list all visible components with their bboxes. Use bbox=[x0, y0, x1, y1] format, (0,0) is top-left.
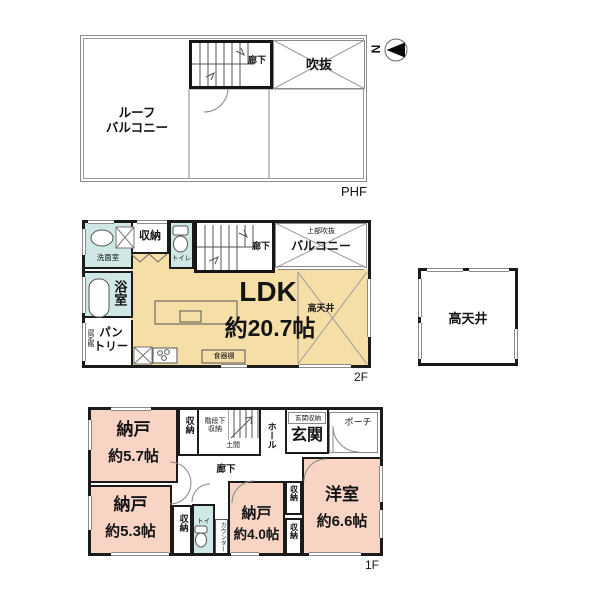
window-mark bbox=[88, 496, 92, 530]
2f-closet: 収納 bbox=[131, 223, 169, 254]
window-mark bbox=[82, 277, 86, 313]
window-mark bbox=[418, 323, 422, 359]
1f-closet-top-label: 収納 bbox=[184, 416, 195, 434]
1f-closet-right-top-label: 収納 bbox=[289, 485, 298, 501]
1f-toilet: トイレ bbox=[192, 504, 215, 553]
floor-plan-page: { "colors": { "room_pink": "#f8d4c4", "r… bbox=[0, 0, 600, 600]
1f-closet-right-bottom-label: 収納 bbox=[289, 523, 298, 539]
window-mark bbox=[379, 466, 383, 502]
annex-high-ceiling-label: 高天井 bbox=[421, 311, 515, 326]
1f-western-name: 洋室 bbox=[304, 485, 380, 505]
phf-corridor-label: 廊下 bbox=[243, 55, 271, 66]
2f-corridor-label: 廊下 bbox=[248, 241, 274, 252]
1f-closet-right-top: 収納 bbox=[285, 481, 302, 515]
window-mark bbox=[137, 220, 167, 224]
window-mark bbox=[469, 268, 509, 272]
1f-hall-label: ホール bbox=[266, 422, 277, 449]
2f-cupboard-label: 食器棚 bbox=[204, 353, 244, 361]
2f-ldk-size-label: 約20.7帖 bbox=[200, 315, 340, 342]
window-mark bbox=[309, 552, 361, 556]
1f-storage-5_7-name: 納戸 bbox=[91, 420, 176, 440]
window-mark bbox=[427, 268, 463, 272]
phf-floor-label: PHF bbox=[337, 184, 371, 199]
2f-floor-label: 2F bbox=[350, 370, 372, 384]
2f-ldk-room-notch bbox=[131, 252, 169, 272]
2f-toilet: トイレ bbox=[169, 223, 194, 269]
floor-phf: 廊下 吹抜 ルーフ バルコニー bbox=[80, 35, 367, 182]
window-mark bbox=[379, 510, 383, 538]
window-mark bbox=[367, 279, 371, 337]
1f-understair-area: 階段下 収納 土間 bbox=[199, 410, 261, 456]
1f-closet-mid-label: 収納 bbox=[178, 514, 189, 532]
high-ceiling-box: 高天井 bbox=[418, 268, 518, 366]
2f-upper-void-label: 上部吹抜 bbox=[285, 228, 357, 236]
1f-closet-mid: 収納 bbox=[172, 505, 192, 553]
window-mark bbox=[514, 329, 518, 359]
1f-storage-5_3-size: 約5.3帖 bbox=[91, 523, 170, 541]
1f-entrance-storage-label: 玄関収納 bbox=[289, 415, 327, 423]
2f-toilet-label: トイレ bbox=[171, 255, 192, 263]
1f-counter-label: カウンター bbox=[218, 522, 225, 552]
1f-entrance-storage-box: 玄関収納 bbox=[288, 412, 326, 424]
2f-washroom-label: 洗面室 bbox=[87, 254, 129, 263]
window-mark bbox=[111, 407, 151, 411]
1f-storage-5_3-name: 納戸 bbox=[91, 495, 170, 515]
1f-storage-5_3: 納戸 約5.3帖 bbox=[91, 485, 172, 553]
window-mark bbox=[88, 220, 114, 224]
window-mark bbox=[82, 323, 86, 361]
1f-entrance: 玄関収納 玄関 bbox=[285, 410, 329, 454]
1f-porch-label: ポーチ bbox=[340, 417, 376, 428]
floor-2f: 洗面室 収納 トイレ 廊下 上部吹抜 バルコニー 浴室 固定棚 パン トリー bbox=[82, 220, 371, 368]
1f-western-size: 約6.6帖 bbox=[304, 513, 380, 531]
floor-1f: 納戸 約5.7帖 収納 階段下 収納 土間 ホール 玄関収納 玄関 ポーチ 廊下… bbox=[88, 407, 383, 556]
2f-pantry-label: パン トリー bbox=[92, 327, 130, 354]
window-mark bbox=[278, 266, 364, 270]
north-label: N bbox=[369, 42, 383, 56]
window-mark bbox=[221, 364, 247, 368]
2f-high-ceiling-label: 高天井 bbox=[301, 303, 341, 314]
door-arc bbox=[192, 484, 210, 502]
1f-corridor-label: 廊下 bbox=[211, 464, 241, 475]
1f-closet-top: 収納 bbox=[178, 410, 199, 456]
window-mark bbox=[231, 552, 259, 556]
window-mark bbox=[299, 364, 351, 368]
1f-entrance-label: 玄関 bbox=[287, 427, 327, 446]
2f-closet-label: 収納 bbox=[133, 230, 167, 243]
2f-bath-label: 浴室 bbox=[112, 280, 127, 306]
1f-toilet-label: トイレ bbox=[194, 518, 213, 533]
window-mark bbox=[88, 420, 92, 450]
1f-storage-4_0: 納戸 約4.0帖 bbox=[228, 481, 285, 553]
1f-storage-5_7-size: 約5.7帖 bbox=[91, 448, 176, 466]
window-mark bbox=[82, 229, 86, 255]
window-mark bbox=[111, 552, 169, 556]
1f-storage-4_0-name: 納戸 bbox=[230, 505, 283, 523]
1f-western-room: 洋室 約6.6帖 bbox=[302, 457, 380, 553]
1f-understair-storage-label: 階段下 収納 bbox=[200, 418, 230, 435]
2f-bathroom: 浴室 bbox=[85, 271, 133, 318]
1f-closet-right-bottom: 収納 bbox=[285, 518, 302, 553]
2f-pantry: 固定棚 パン トリー bbox=[85, 320, 133, 365]
1f-storage-4_0-size: 約4.0帖 bbox=[230, 527, 283, 543]
2f-washroom: 洗面室 bbox=[85, 223, 133, 269]
window-mark bbox=[418, 279, 422, 317]
2f-balcony-label: バルコニー bbox=[277, 239, 365, 253]
1f-floor-label: 1F bbox=[361, 558, 383, 572]
phf-roof-balcony-label: ルーフ バルコニー bbox=[87, 106, 187, 136]
door-arc bbox=[170, 483, 191, 504]
phf-void-label: 吹抜 bbox=[273, 57, 365, 72]
1f-porch: ポーチ bbox=[329, 412, 378, 453]
1f-storage-5_7: 納戸 約5.7帖 bbox=[91, 410, 178, 483]
1f-doma-label: 土間 bbox=[223, 442, 243, 450]
1f-counter: カウンター bbox=[215, 519, 228, 553]
compass-icon bbox=[382, 37, 410, 65]
